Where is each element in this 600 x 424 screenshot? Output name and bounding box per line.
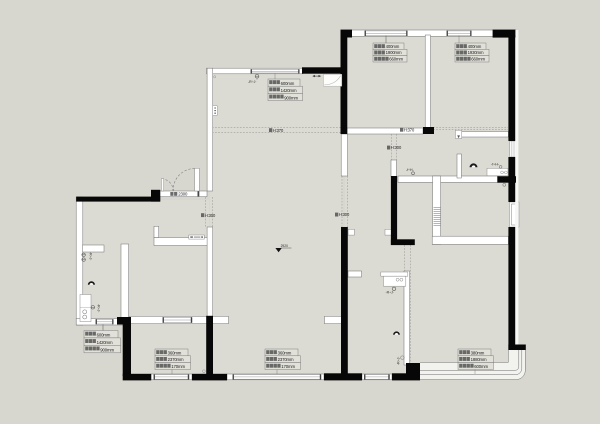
svg-text:-R÷J·: -R÷J· bbox=[397, 356, 401, 365]
svg-text:660mm: 660mm bbox=[389, 57, 403, 62]
svg-text:1900mm: 1900mm bbox=[386, 50, 402, 55]
svg-text:-f÷H-: -f÷H- bbox=[406, 168, 415, 172]
svg-text:600mm: 600mm bbox=[474, 364, 488, 369]
svg-text:360mm: 360mm bbox=[278, 350, 292, 355]
svg-text:1420mm: 1420mm bbox=[281, 88, 297, 93]
svg-text:600mm: 600mm bbox=[97, 333, 111, 338]
svg-text:400mm: 400mm bbox=[386, 44, 400, 49]
svg-text:H:300: H:300 bbox=[391, 145, 402, 150]
svg-text:H:300: H:300 bbox=[339, 212, 350, 217]
svg-text:400mm: 400mm bbox=[468, 44, 482, 49]
svg-text:2300: 2300 bbox=[178, 192, 188, 197]
svg-text:900mm: 900mm bbox=[100, 347, 114, 352]
svg-text:H:370: H:370 bbox=[404, 127, 415, 132]
svg-text:2370mm: 2370mm bbox=[168, 357, 184, 362]
svg-text:-R÷J·: -R÷J· bbox=[97, 304, 101, 313]
svg-text:1930mm: 1930mm bbox=[468, 50, 484, 55]
svg-text:1420mm: 1420mm bbox=[97, 340, 113, 345]
svg-text:170mm: 170mm bbox=[281, 364, 295, 369]
svg-text:170mm: 170mm bbox=[171, 364, 185, 369]
svg-text:H:300: H:300 bbox=[205, 213, 216, 218]
svg-text:1880mm: 1880mm bbox=[471, 357, 487, 362]
svg-text:600mm: 600mm bbox=[281, 81, 295, 86]
svg-text:900mm: 900mm bbox=[284, 95, 298, 100]
svg-text:360mm: 360mm bbox=[168, 350, 182, 355]
svg-text:H:370: H:370 bbox=[273, 128, 284, 133]
svg-text:380mm: 380mm bbox=[471, 350, 485, 355]
svg-text:2920: 2920 bbox=[281, 244, 289, 248]
svg-text:-f÷H-: -f÷H- bbox=[491, 163, 500, 167]
svg-text:2370mm: 2370mm bbox=[278, 357, 294, 362]
svg-text:660mm: 660mm bbox=[471, 57, 485, 62]
svg-text:-R÷J·: -R÷J· bbox=[89, 252, 93, 261]
svg-text:-R÷J·: -R÷J· bbox=[386, 290, 395, 294]
svg-text:-R÷J·: -R÷J· bbox=[248, 80, 257, 84]
